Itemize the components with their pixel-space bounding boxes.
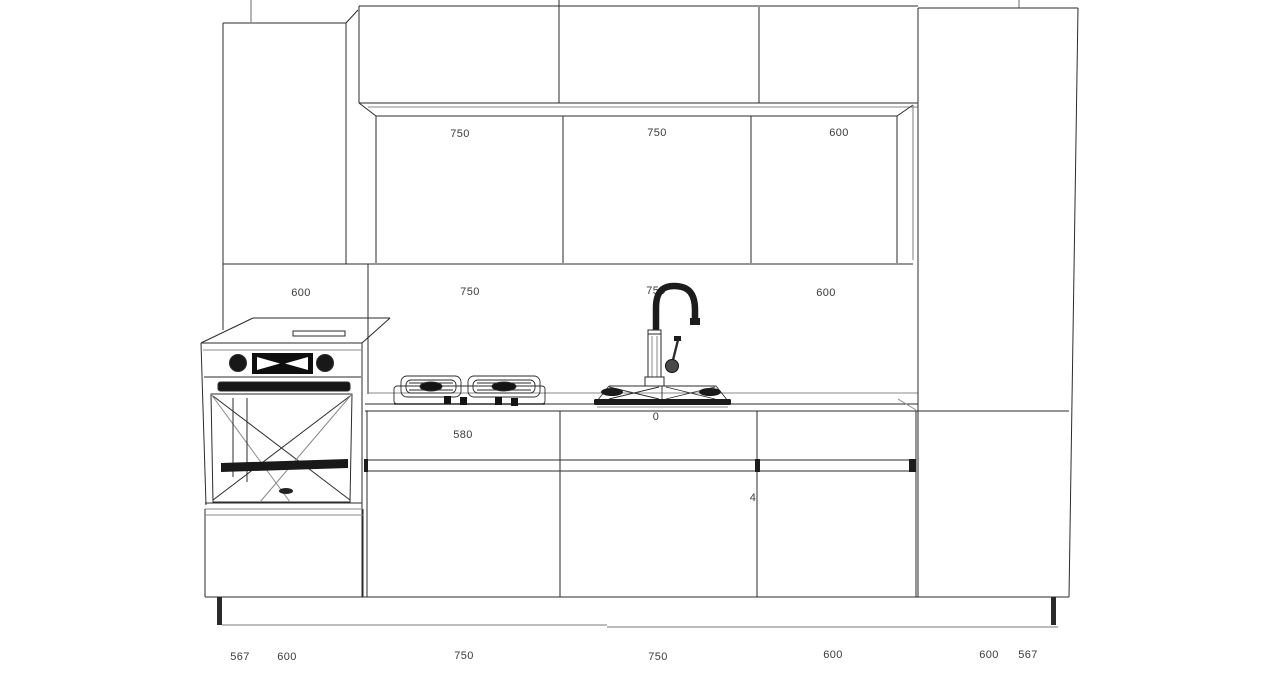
kitchen-elevation-canvas[interactable]: 750 750 600 600 750 750 600 580 0 4 567 … bbox=[0, 0, 1277, 673]
oven-vent bbox=[293, 331, 345, 336]
sink[interactable] bbox=[594, 386, 731, 407]
handle-cap bbox=[755, 459, 760, 472]
top-cabinet-row[interactable] bbox=[359, 0, 918, 107]
oven-handle[interactable] bbox=[218, 382, 350, 391]
oven-door[interactable] bbox=[205, 394, 363, 509]
cabinet-leg bbox=[217, 597, 222, 625]
oven-knob-icon[interactable] bbox=[230, 355, 247, 372]
faucet-lever[interactable] bbox=[666, 336, 682, 373]
cabinet-leg bbox=[1051, 597, 1056, 625]
cooktop-knob-icon[interactable] bbox=[511, 398, 518, 406]
elevation-drawing bbox=[0, 0, 1277, 673]
base-cabinet-row[interactable] bbox=[205, 411, 918, 597]
faucet-spout bbox=[690, 318, 700, 325]
cooktop-knob-icon[interactable] bbox=[460, 397, 467, 405]
cooktop-knob-icon[interactable] bbox=[444, 396, 451, 404]
burner-icon bbox=[492, 382, 516, 391]
cooktop[interactable] bbox=[394, 376, 545, 406]
oven[interactable] bbox=[201, 318, 390, 625]
floor-line bbox=[222, 625, 1058, 627]
handle-cap bbox=[364, 459, 368, 472]
oven-knob-icon[interactable] bbox=[317, 355, 334, 372]
handle-cap bbox=[909, 459, 916, 472]
burner-icon bbox=[420, 382, 442, 391]
ceiling-reference-lines bbox=[251, 0, 1019, 22]
oven-display bbox=[252, 353, 313, 374]
wall-cabinet-row[interactable] bbox=[223, 103, 913, 264]
faucet[interactable] bbox=[645, 286, 700, 386]
oven-drawer[interactable] bbox=[205, 509, 363, 597]
tall-cabinet-right[interactable] bbox=[918, 8, 1078, 625]
tall-cabinet-left[interactable] bbox=[223, 10, 358, 330]
cooktop-knob-icon[interactable] bbox=[495, 397, 502, 405]
